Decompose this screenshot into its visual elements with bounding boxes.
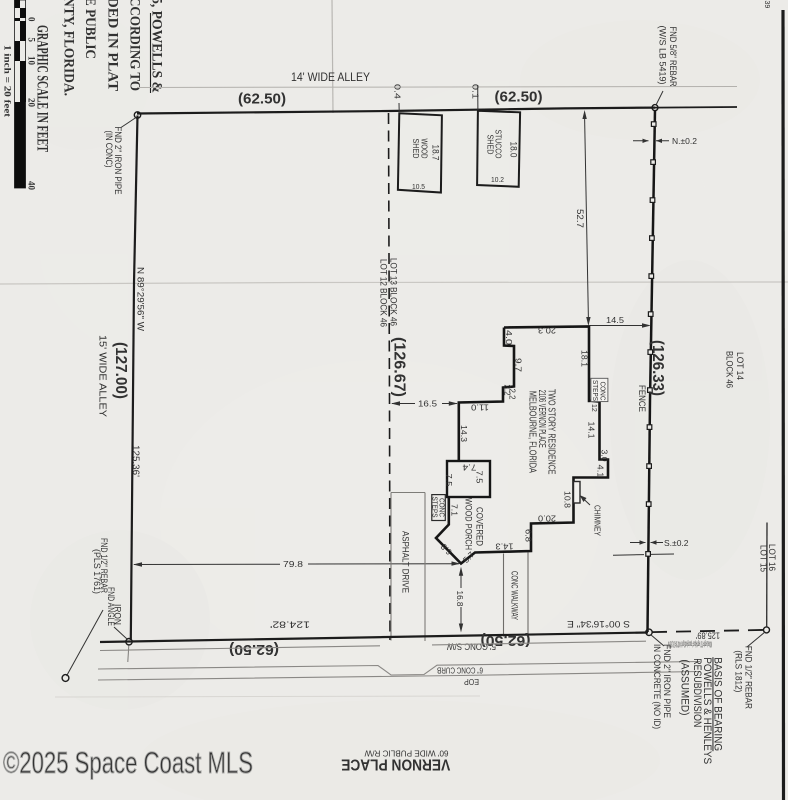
svg-text:STEPS: STEPS [591, 380, 600, 401]
svg-text:2.2: 2.2 [508, 389, 517, 401]
svg-text:10.2: 10.2 [491, 175, 504, 184]
svg-text:GRAPHIC SCALE IN FEET: GRAPHIC SCALE IN FEET [34, 25, 51, 152]
svg-text:ASPHALT DRIVE: ASPHALT DRIVE [400, 531, 411, 593]
svg-text:6" CONC CURB: 6" CONC CURB [437, 665, 483, 675]
svg-text:WOOD PORCH: WOOD PORCH [463, 498, 474, 550]
svg-text:18.1: 18.1 [580, 350, 590, 367]
svg-text:14.1: 14.1 [587, 422, 597, 439]
svg-text:52.7: 52.7 [575, 209, 585, 228]
svg-text:11.0: 11.0 [471, 402, 489, 412]
svg-text:(126.67): (126.67) [391, 337, 408, 397]
svg-text:18.7: 18.7 [431, 145, 441, 161]
svg-text:9.7: 9.7 [514, 358, 524, 372]
svg-text:(W/S LB 5419): (W/S LB 5419) [658, 26, 669, 85]
svg-text:CCORDING TO: CCORDING TO [127, 0, 143, 91]
svg-text:EOP: EOP [464, 677, 479, 686]
svg-text:4.0: 4.0 [504, 330, 514, 345]
svg-text:60' WIDE PUBLIC R/W: 60' WIDE PUBLIC R/W [364, 749, 448, 758]
svg-text:FENCE: FENCE [636, 385, 647, 412]
svg-text:20.0: 20.0 [538, 513, 556, 523]
svg-text:4.1: 4.1 [596, 465, 606, 478]
svg-text:16.5: 16.5 [418, 399, 437, 409]
svg-text:(127.00): (127.00) [112, 342, 129, 399]
svg-text:39: 39 [763, 1, 770, 9]
svg-text:N00textLength="62" lengthAdjus: N00textLength="62" lengthAdjust="spacing… [668, 639, 712, 648]
svg-text:20.3: 20.3 [538, 326, 556, 336]
svg-text:125.89': 125.89' [696, 630, 720, 640]
svg-text:E PUBLIC: E PUBLIC [82, 0, 98, 59]
svg-text:7.1: 7.1 [450, 504, 460, 516]
svg-text:10.5: 10.5 [412, 182, 425, 191]
svg-text:(IN CONC): (IN CONC) [104, 131, 115, 168]
svg-text:124.82': 124.82' [270, 620, 310, 630]
svg-text:16.8: 16.8 [455, 591, 465, 607]
svg-text:(RLS 1812): (RLS 1812) [734, 650, 745, 692]
svg-text:LOT 13 BLOCK 46: LOT 13 BLOCK 46 [389, 258, 399, 326]
svg-text:(126.33): (126.33) [649, 340, 666, 396]
svg-text:5' CONC S/W: 5' CONC S/W [447, 641, 496, 651]
svg-text:S 00°16'34" E: S 00°16'34" E [567, 619, 630, 629]
svg-text:14.3: 14.3 [495, 542, 513, 552]
svg-text:18.0: 18.0 [509, 142, 519, 158]
svg-text:(62.50): (62.50) [495, 90, 543, 106]
svg-text:DED IN PLAT: DED IN PLAT [105, 0, 121, 91]
svg-text:©2025 Space Coast MLS: ©2025 Space Coast MLS [3, 745, 253, 780]
svg-text:COVERED: COVERED [474, 507, 485, 546]
svg-text:(PLS 1761): (PLS 1761) [92, 549, 102, 594]
svg-text:0: 0 [27, 17, 37, 22]
svg-text:BLOCK 46: BLOCK 46 [725, 351, 735, 388]
svg-text:(ASSUMED): (ASSUMED) [678, 659, 690, 715]
svg-text:7.4: 7.4 [462, 462, 476, 472]
svg-text:MELBOURNE, FLORIDA: MELBOURNE, FLORIDA [527, 391, 538, 473]
svg-text:1 inch = 20 feet: 1 inch = 20 feet [2, 45, 12, 118]
svg-text:40: 40 [27, 181, 37, 191]
svg-text:0.4: 0.4 [393, 84, 403, 99]
svg-text:12: 12 [590, 404, 597, 412]
svg-text:LOT 14: LOT 14 [735, 352, 745, 380]
svg-text:7.5: 7.5 [475, 471, 485, 484]
svg-text:IN CONCRETE (NO ID): IN CONCRETE (NO ID) [652, 644, 663, 729]
svg-text:14.5: 14.5 [606, 315, 624, 325]
svg-text:STEPS: STEPS [431, 497, 440, 518]
svg-text:3.0: 3.0 [600, 450, 610, 462]
svg-text:14.3: 14.3 [459, 425, 469, 442]
svg-text:(62.50): (62.50) [238, 92, 286, 108]
svg-text:14' WIDE ALLEY: 14' WIDE ALLEY [291, 72, 370, 84]
svg-text:15' WIDE ALLEY: 15' WIDE ALLEY [97, 335, 109, 417]
svg-text:IRON: IRON [112, 604, 122, 625]
svg-text:(62.50): (62.50) [229, 641, 279, 657]
svg-text:CHIMNEY: CHIMNEY [593, 505, 603, 536]
svg-text:S.±0.2: S.±0.2 [664, 538, 689, 548]
svg-text:SHED: SHED [486, 135, 496, 155]
svg-text:RESUBDIVISION: RESUBDIVISION [691, 658, 703, 727]
svg-text:FND 5/8" REBAR: FND 5/8" REBAR [668, 27, 679, 87]
svg-text:0.1: 0.1 [471, 84, 481, 99]
svg-text:7.5: 7.5 [444, 474, 454, 487]
svg-text:NTY, FLORIDA.: NTY, FLORIDA. [61, 0, 77, 96]
svg-text:N 89°29'56" W: N 89°29'56" W [135, 267, 146, 331]
svg-text:10.8: 10.8 [563, 491, 573, 508]
svg-text:79.8: 79.8 [283, 559, 303, 569]
svg-text:6.8: 6.8 [524, 529, 534, 542]
svg-text:N.±0.2: N.±0.2 [672, 136, 697, 146]
svg-text:LOT 15: LOT 15 [759, 545, 769, 572]
svg-text:125.36': 125.36' [130, 445, 141, 477]
svg-text:CONC WALKWAY: CONC WALKWAY [509, 571, 520, 620]
svg-text:SHED: SHED [411, 139, 421, 159]
svg-text:LOT 12 BLOCK 46: LOT 12 BLOCK 46 [379, 259, 389, 327]
